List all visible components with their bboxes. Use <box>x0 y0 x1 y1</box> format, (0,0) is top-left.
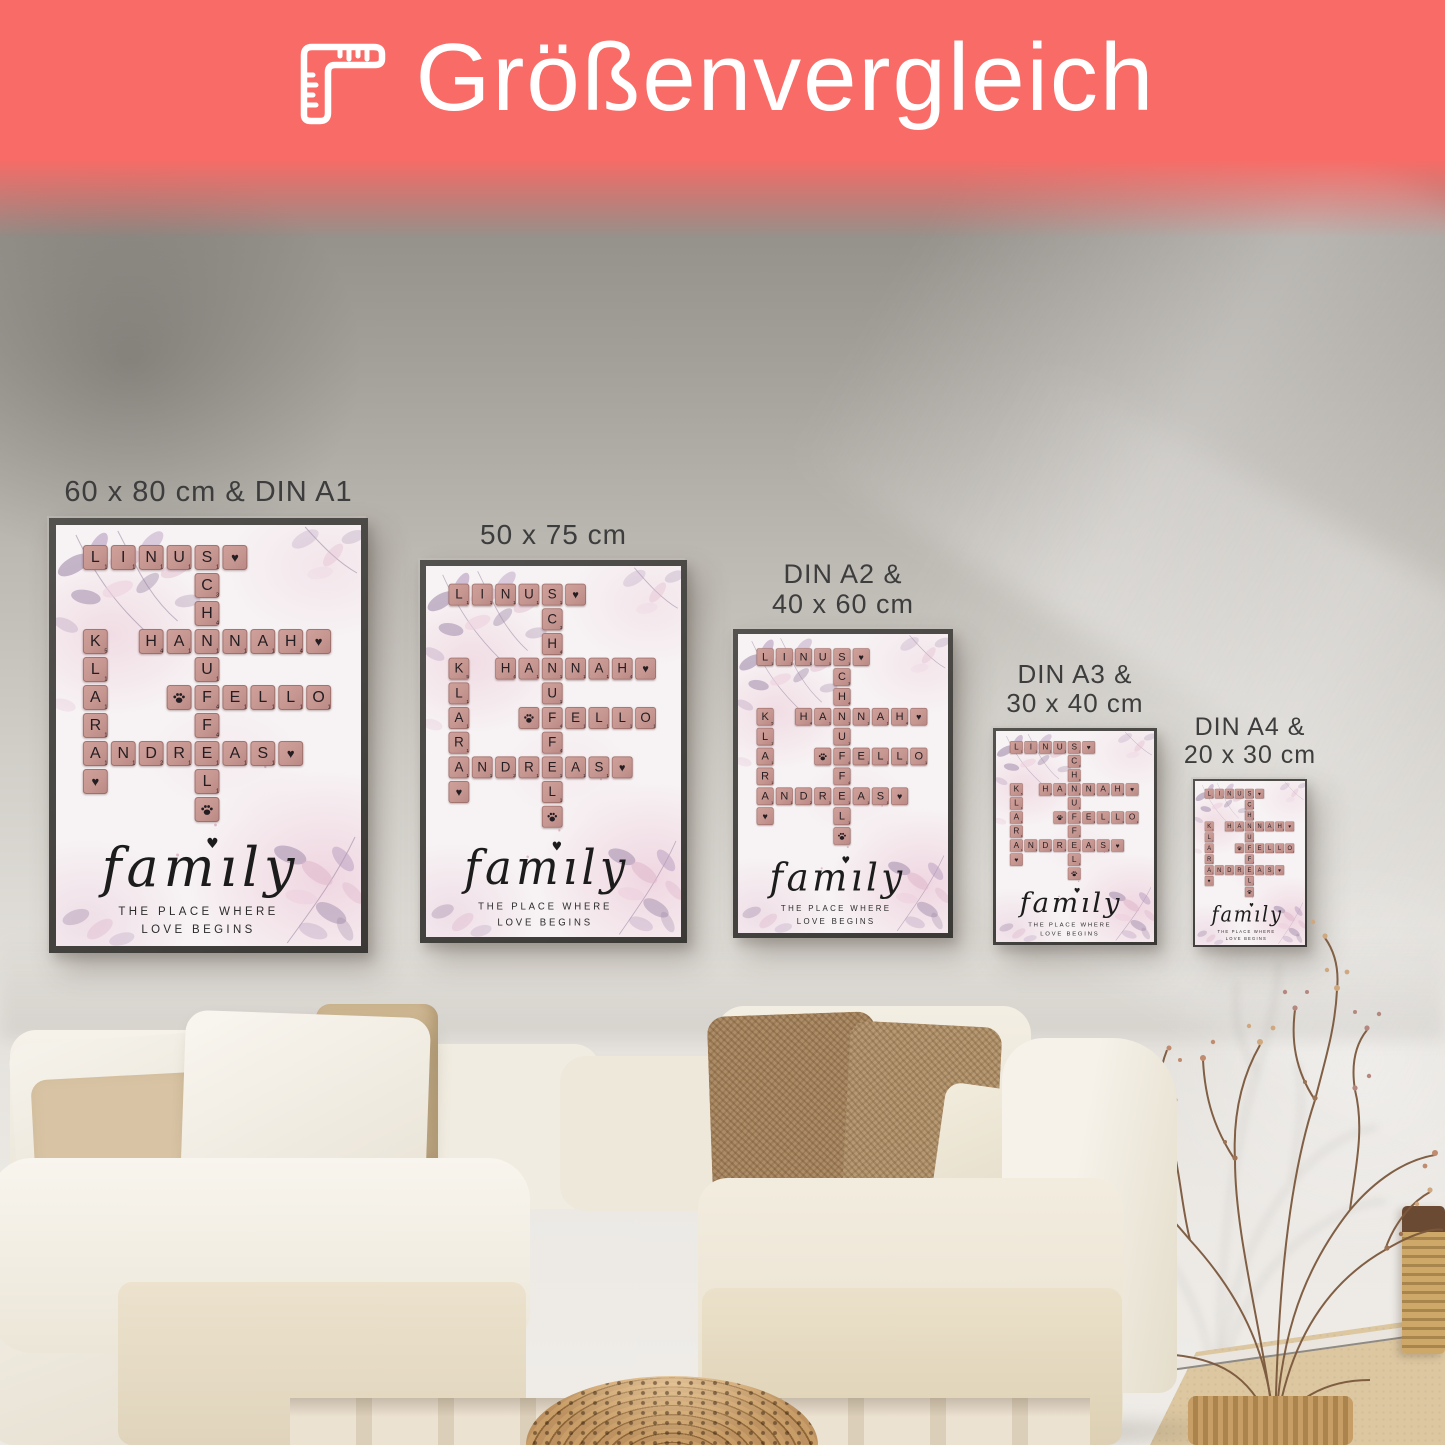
scrabble-tile: N1 <box>472 756 493 778</box>
tile-value: 5 <box>1213 829 1214 831</box>
tile-value: 1 <box>1213 840 1214 842</box>
tile-value: 1 <box>216 564 219 570</box>
scrabble-tile: K5 <box>1010 783 1023 796</box>
poster-frame-size-60x80-din-a1: L1I1N1U1S1♥C3H4K5H4A1N1N1A1H4♥L1U1A1 F4E… <box>49 518 368 953</box>
poster-subtitle-line: THE PLACE WHERE <box>426 902 664 913</box>
heart-tile: ♥ <box>891 787 908 805</box>
poster-art: L1I1N1U1S1♥C3H4K5H4A1N1N1A1H4♥L1U1A1 F4E… <box>426 566 681 937</box>
tile-value: 1 <box>1293 851 1294 853</box>
tile-value: 1 <box>467 699 470 704</box>
scrabble-tile: L1 <box>195 769 220 794</box>
tile-value: 1 <box>829 801 831 805</box>
tile-value: 1 <box>653 724 656 729</box>
scrabble-tile: O1 <box>306 685 331 710</box>
tile-value: 5 <box>467 674 470 679</box>
scrabble-tile: L1 <box>612 707 633 729</box>
paw-tile <box>195 797 220 822</box>
scrabble-tile: I1 <box>111 545 136 570</box>
scrabble-tile: E1 <box>833 787 850 805</box>
paw-tile <box>167 685 192 710</box>
tile-value: 1 <box>1108 821 1110 824</box>
tile-value: 1 <box>1253 840 1254 842</box>
scrabble-tile: H4 <box>891 708 908 726</box>
scrabble-tile: N1 <box>1245 822 1254 832</box>
scrabble-tile: F4 <box>833 768 850 786</box>
tile-value: 2 <box>1050 849 1052 852</box>
tile-value: 1 <box>467 724 470 729</box>
scrabble-tile: L1 <box>278 685 303 710</box>
poster-size-label-line: 20 x 30 cm <box>1184 741 1316 769</box>
scrabble-tile: H4 <box>795 708 812 726</box>
tile-value: 1 <box>300 704 303 710</box>
scrabble-tile: D2 <box>795 787 812 805</box>
scrabble-tile: A1 <box>1205 843 1214 853</box>
paw-tile <box>519 707 540 729</box>
tile-value: 1 <box>1050 751 1052 754</box>
family-heart-icon: ♥ <box>1074 887 1080 894</box>
tile-value: 3 <box>1253 807 1254 809</box>
scrabble-tile: N1 <box>1082 783 1095 796</box>
scrabble-tile: S1 <box>1068 741 1081 754</box>
scrabble-tile: F4 <box>195 713 220 738</box>
scrabble-tile: L1 <box>1068 853 1081 866</box>
heart-tile: ♥ <box>449 781 470 803</box>
scrabble-tile: A1 <box>167 629 192 654</box>
tile-value: 1 <box>1108 849 1110 852</box>
scrabble-tile: L1 <box>872 748 889 766</box>
tile-value: 4 <box>906 721 908 725</box>
poster-art: L1I1N1U1S1♥C3H4K5H4A1N1N1A1H4♥L1U1A1 F4E… <box>738 634 948 933</box>
scrabble-tile: N1 <box>1039 741 1052 754</box>
scrabble-tile: L1 <box>1010 797 1023 810</box>
tile-value: 1 <box>1065 793 1067 796</box>
tile-value: 1 <box>848 801 850 805</box>
heart-tile: ♥ <box>1111 839 1124 852</box>
heart-icon: ♥ <box>1255 789 1264 799</box>
tile-value: 1 <box>1065 751 1067 754</box>
heart-icon: ♥ <box>1082 741 1095 754</box>
scrabble-tile: L1 <box>1097 811 1110 824</box>
heart-icon: ♥ <box>278 741 303 766</box>
tile-value: 1 <box>1094 849 1096 852</box>
scrabble-tile: U1 <box>833 728 850 746</box>
tile-value: 1 <box>1213 796 1214 798</box>
tile-value: 1 <box>887 721 889 725</box>
tile-value: 4 <box>1253 851 1254 853</box>
scrabble-tile: A1 <box>1097 783 1110 796</box>
scrabble-tile: L1 <box>757 728 774 746</box>
tile-value: 1 <box>161 564 164 570</box>
tile-value: 1 <box>1253 796 1254 798</box>
scrabble-tile: L1 <box>449 584 470 606</box>
poster-subtitle-line: LOVE BEGINS <box>738 917 934 926</box>
heart-tile: ♥ <box>83 769 108 794</box>
tile-value: 1 <box>244 704 247 710</box>
scrabble-tile: A1 <box>757 787 774 805</box>
tile-value: 2 <box>513 773 516 778</box>
poster-size-label: 50 x 75 cm <box>480 519 627 550</box>
tile-value: 1 <box>1065 849 1067 852</box>
scrabble-tile: S1 <box>195 545 220 570</box>
tile-value: 1 <box>1233 796 1234 798</box>
tile-value: 4 <box>848 761 850 765</box>
tile-value: 1 <box>1243 829 1244 831</box>
scrabble-tile: S1 <box>1097 839 1110 852</box>
scrabble-tile: E1 <box>222 685 247 710</box>
paw-icon <box>1071 871 1078 877</box>
paw-icon <box>1237 846 1242 851</box>
scrabble-tile: H4 <box>612 658 633 680</box>
scrabble-tile: S1 <box>872 787 889 805</box>
tile-value: 1 <box>630 724 633 729</box>
heart-icon: ♥ <box>222 545 247 570</box>
paw-icon <box>547 811 558 822</box>
scrabble-tile: C3 <box>542 608 563 630</box>
tile-value: 4 <box>161 648 164 654</box>
scrabble-tile: C3 <box>195 573 220 598</box>
tile-value: 1 <box>328 704 331 710</box>
tile-value: 1 <box>1108 793 1110 796</box>
tile-value: 1 <box>1021 835 1023 838</box>
scrabble-tile: K5 <box>757 708 774 726</box>
scrabble-tile: N1 <box>795 648 812 666</box>
tile-value: 4 <box>560 748 563 753</box>
poster-size-label: DIN A4 &20 x 30 cm <box>1184 713 1316 769</box>
tile-value: 2 <box>810 801 812 805</box>
heart-tile: ♥ <box>278 741 303 766</box>
scrabble-tile: H4 <box>1225 822 1234 832</box>
scrabble-tile: L1 <box>1205 832 1214 842</box>
scrabble-tile: U1 <box>1053 741 1066 754</box>
heart-icon: ♥ <box>1111 839 1124 852</box>
scrabble-tile: A1 <box>853 787 870 805</box>
scrabble-tile: A1 <box>449 756 470 778</box>
scrabble-tile: E1 <box>1255 843 1264 853</box>
scrabble-tile: F4 <box>1068 811 1081 824</box>
scrabble-tile: A1 <box>222 741 247 766</box>
tile-value: 1 <box>105 704 108 710</box>
paw-icon <box>838 832 847 841</box>
poster-size-label: 60 x 80 cm & DIN A1 <box>64 476 352 508</box>
scrabble-tile: D2 <box>495 756 516 778</box>
scrabble-tile: L1 <box>1205 789 1214 799</box>
scrabble-tile: L1 <box>542 781 563 803</box>
tile-value: 1 <box>925 761 927 765</box>
scrabble-tile: O1 <box>1126 811 1139 824</box>
scrabble-tile: E1 <box>565 707 586 729</box>
tile-value: 1 <box>906 761 908 765</box>
tile-value: 1 <box>537 773 540 778</box>
poster-size-label-line: DIN A4 & <box>1184 713 1316 741</box>
tile-value: 1 <box>189 760 192 766</box>
poster-size-label-line: 60 x 80 cm & DIN A1 <box>64 476 352 508</box>
poster-subtitle-line: LOVE BEGINS <box>426 918 664 929</box>
poster-frame-size-din-a2-40x60: L1I1N1U1S1♥C3H4K5H4A1N1N1A1H4♥L1U1A1 F4E… <box>733 629 953 938</box>
size-comparison-banner: Größenvergleich <box>0 0 1445 240</box>
scrabble-tile: A1 <box>1235 822 1244 832</box>
scrabble-tile: F4 <box>1068 825 1081 838</box>
heart-icon: ♥ <box>1010 853 1023 866</box>
paw-icon <box>1056 814 1063 820</box>
scrabble-tile: O1 <box>910 748 927 766</box>
poster-frame-size-50x75: L1I1N1U1S1♥C3H4K5H4A1N1N1A1H4♥L1U1A1 F4E… <box>420 560 687 943</box>
poster-size-label-line: 40 x 60 cm <box>772 589 914 619</box>
tile-value: 1 <box>772 741 774 745</box>
heart-icon: ♥ <box>612 756 633 778</box>
tile-value: 1 <box>467 600 470 605</box>
tile-value: 4 <box>560 650 563 655</box>
tile-value: 1 <box>772 801 774 805</box>
heart-tile: ♥ <box>612 756 633 778</box>
tile-value: 1 <box>772 761 774 765</box>
scrabble-tile: A1 <box>565 756 586 778</box>
tile-value: 1 <box>105 564 108 570</box>
tile-value: 1 <box>1094 793 1096 796</box>
tile-value: 1 <box>607 724 610 729</box>
banner-title: Größenvergleich <box>416 30 1156 140</box>
paw-icon <box>173 692 186 704</box>
scrabble-tile: K5 <box>1205 822 1214 832</box>
tile-value: 1 <box>1021 751 1023 754</box>
heart-icon: ♥ <box>1285 822 1294 832</box>
tile-value: 4 <box>216 620 219 626</box>
poster-size-label-line: 30 x 40 cm <box>1006 689 1143 718</box>
tile-value: 1 <box>244 648 247 654</box>
paw-tile <box>814 748 831 766</box>
scrabble-tile: N1 <box>833 708 850 726</box>
scrabble-tile: N1 <box>139 545 164 570</box>
tile-value: 1 <box>105 732 108 738</box>
tile-value: 2 <box>161 760 164 766</box>
scrabble-tile: N1 <box>1225 789 1234 799</box>
tile-value: 1 <box>772 662 774 666</box>
scrabble-tile: R1 <box>814 787 831 805</box>
tile-value: 1 <box>1223 796 1224 798</box>
poster-size-label-line: DIN A3 & <box>1006 660 1143 689</box>
paw-icon <box>524 713 535 724</box>
tile-value: 1 <box>216 648 219 654</box>
heart-tile: ♥ <box>1255 789 1264 799</box>
scrabble-tile: U1 <box>814 648 831 666</box>
poster-subtitle-line: THE PLACE WHERE <box>738 905 934 914</box>
scrabble-tile: H4 <box>1245 811 1254 821</box>
tile-value: 1 <box>848 821 850 825</box>
tile-value: 4 <box>216 704 219 710</box>
scrabble-tile: E1 <box>853 748 870 766</box>
tile-value: 1 <box>1079 863 1081 866</box>
tile-value: 1 <box>1079 793 1081 796</box>
scrabble-tile: K5 <box>449 658 470 680</box>
tile-value: 1 <box>560 600 563 605</box>
tile-value: 1 <box>216 788 219 794</box>
scrabble-tile: R1 <box>83 713 108 738</box>
tile-value: 1 <box>1079 751 1081 754</box>
scrabble-tile: A1 <box>872 708 889 726</box>
tile-value: 1 <box>189 648 192 654</box>
tile-value: 1 <box>1273 851 1274 853</box>
tile-value: 1 <box>1079 807 1081 810</box>
scrabble-tile: N1 <box>222 629 247 654</box>
scrabble-tile: K5 <box>83 629 108 654</box>
heart-tile: ♥ <box>1082 741 1095 754</box>
heart-tile: ♥ <box>853 648 870 666</box>
family-heart-icon: ♥ <box>206 837 219 851</box>
scrabble-tile: D2 <box>1039 839 1052 852</box>
scrabble-tile: N1 <box>853 708 870 726</box>
scrabble-tile: F4 <box>542 732 563 754</box>
family-script-title: famıly♥ <box>426 844 668 892</box>
scrabble-tile: D2 <box>139 741 164 766</box>
tile-value: 1 <box>848 662 850 666</box>
tile-value: 1 <box>1094 821 1096 824</box>
tile-value: 1 <box>1036 849 1038 852</box>
scrabble-tile: N1 <box>1024 839 1037 852</box>
paw-tile <box>1068 867 1081 880</box>
tile-value: 1 <box>607 773 610 778</box>
tile-value: 1 <box>868 761 870 765</box>
scrabble-tile: F4 <box>542 707 563 729</box>
poster-art: L1I1N1U1S1♥C3H4K5H4A1N1N1A1H4♥L1U1A1 F4E… <box>56 525 361 946</box>
tile-value: 1 <box>105 676 108 682</box>
tile-value: 1 <box>848 721 850 725</box>
scrabble-tile: N1 <box>565 658 586 680</box>
scrabble-tile: R1 <box>1010 825 1023 838</box>
tile-value: 1 <box>467 748 470 753</box>
tile-value: 1 <box>1253 829 1254 831</box>
tile-value: 4 <box>216 732 219 738</box>
scrabble-tile: U1 <box>542 682 563 704</box>
scrabble-tile: O1 <box>635 707 656 729</box>
scrabble-tile: S1 <box>833 648 850 666</box>
scrabble-tile: H4 <box>542 633 563 655</box>
tile-value: 1 <box>1213 851 1214 853</box>
tile-value: 5 <box>1021 793 1023 796</box>
tile-value: 1 <box>868 721 870 725</box>
heart-icon: ♥ <box>635 658 656 680</box>
scrabble-tile: H4 <box>495 658 516 680</box>
tile-value: 1 <box>887 801 889 805</box>
scrabble-tile: O1 <box>1285 843 1294 853</box>
scrabble-tile: C3 <box>1245 800 1254 810</box>
scrabble-tile: N1 <box>1255 822 1264 832</box>
tile-value: 1 <box>791 662 793 666</box>
tile-value: 1 <box>133 760 136 766</box>
scrabble-tile: A1 <box>757 748 774 766</box>
scrabble-tile: C3 <box>1068 755 1081 768</box>
heart-icon: ♥ <box>306 629 331 654</box>
scrabble-tile: H4 <box>278 629 303 654</box>
tile-value: 1 <box>810 662 812 666</box>
tile-value: 4 <box>810 721 812 725</box>
scrabble-tile: L1 <box>1111 811 1124 824</box>
scrabble-tile: N1 <box>1068 783 1081 796</box>
tile-value: 5 <box>105 648 108 654</box>
tile-value: 3 <box>848 682 850 686</box>
scrabble-tile: I1 <box>1215 789 1224 799</box>
tile-value: 1 <box>537 674 540 679</box>
heart-tile: ♥ <box>757 807 774 825</box>
tile-value: 1 <box>1243 796 1244 798</box>
tile-value: 1 <box>560 798 563 803</box>
size-comparison-scene: Größenvergleich 60 x 80 cm & DIN A1 L1I1… <box>0 0 1445 1445</box>
poster-size-label-line: DIN A2 & <box>772 559 914 589</box>
scrabble-tile: U1 <box>519 584 540 606</box>
scrabble-tile: L1 <box>891 748 908 766</box>
paw-icon <box>818 752 827 761</box>
poster-subtitle-line: THE PLACE WHERE <box>56 906 341 918</box>
tile-value: 1 <box>272 704 275 710</box>
jute-mat <box>1188 1396 1353 1445</box>
scrabble-tile: L1 <box>589 707 610 729</box>
scrabble-tile: S1 <box>589 756 610 778</box>
tile-value: 1 <box>1263 829 1264 831</box>
scrabble-tile: N1 <box>542 658 563 680</box>
scrabble-tile: F4 <box>1245 843 1254 853</box>
tile-value: 4 <box>848 701 850 705</box>
scrabble-tile: R1 <box>519 756 540 778</box>
scrabble-tile: L1 <box>757 648 774 666</box>
heart-tile: ♥ <box>1010 853 1023 866</box>
tile-value: 4 <box>513 674 516 679</box>
paw-tile <box>1235 843 1244 853</box>
scrabble-tile: A1 <box>250 629 275 654</box>
scrabble-tile: N1 <box>776 787 793 805</box>
scrabble-tile: A1 <box>1010 811 1023 824</box>
scrabble-tile: E1 <box>1082 811 1095 824</box>
tile-value: 4 <box>560 724 563 729</box>
tile-value: 1 <box>1273 829 1274 831</box>
scrabble-tile: S1 <box>1245 789 1254 799</box>
heart-tile: ♥ <box>222 545 247 570</box>
tile-value: 4 <box>848 781 850 785</box>
tile-value: 1 <box>848 741 850 745</box>
tile-value: 1 <box>791 801 793 805</box>
heart-tile: ♥ <box>306 629 331 654</box>
tile-value: 1 <box>1036 751 1038 754</box>
tile-value: 1 <box>133 564 136 570</box>
paw-icon <box>201 804 214 816</box>
tile-value: 1 <box>537 600 540 605</box>
scrabble-tile: L1 <box>449 682 470 704</box>
tile-value: 1 <box>560 699 563 704</box>
tile-value: 1 <box>244 760 247 766</box>
family-heart-icon: ♥ <box>841 856 850 866</box>
scrabble-tile: A1 <box>589 658 610 680</box>
scrabble-tile: U1 <box>195 657 220 682</box>
scrabble-tile: F4 <box>833 748 850 766</box>
heart-tile: ♥ <box>565 584 586 606</box>
tile-value: 1 <box>583 773 586 778</box>
heart-tile: ♥ <box>910 708 927 726</box>
scrabble-tile: R1 <box>1053 839 1066 852</box>
tile-value: 4 <box>1283 829 1284 831</box>
tile-value: 4 <box>630 674 633 679</box>
tile-value: 4 <box>1079 835 1081 838</box>
heart-icon: ♥ <box>565 584 586 606</box>
tile-value: 1 <box>189 564 192 570</box>
tile-value: 5 <box>772 721 774 725</box>
scrabble-tile: L1 <box>1275 843 1284 853</box>
scrabble-tile: L1 <box>83 545 108 570</box>
scrabble-tile: U1 <box>1068 797 1081 810</box>
tile-value: 1 <box>490 600 493 605</box>
scrabble-tile: H4 <box>1275 822 1284 832</box>
paw-tile <box>542 806 563 828</box>
banner-content: Größenvergleich <box>290 30 1156 140</box>
family-script-title: famıly♥ <box>56 841 345 895</box>
tile-value: 1 <box>105 760 108 766</box>
tile-value: 4 <box>1233 829 1234 831</box>
